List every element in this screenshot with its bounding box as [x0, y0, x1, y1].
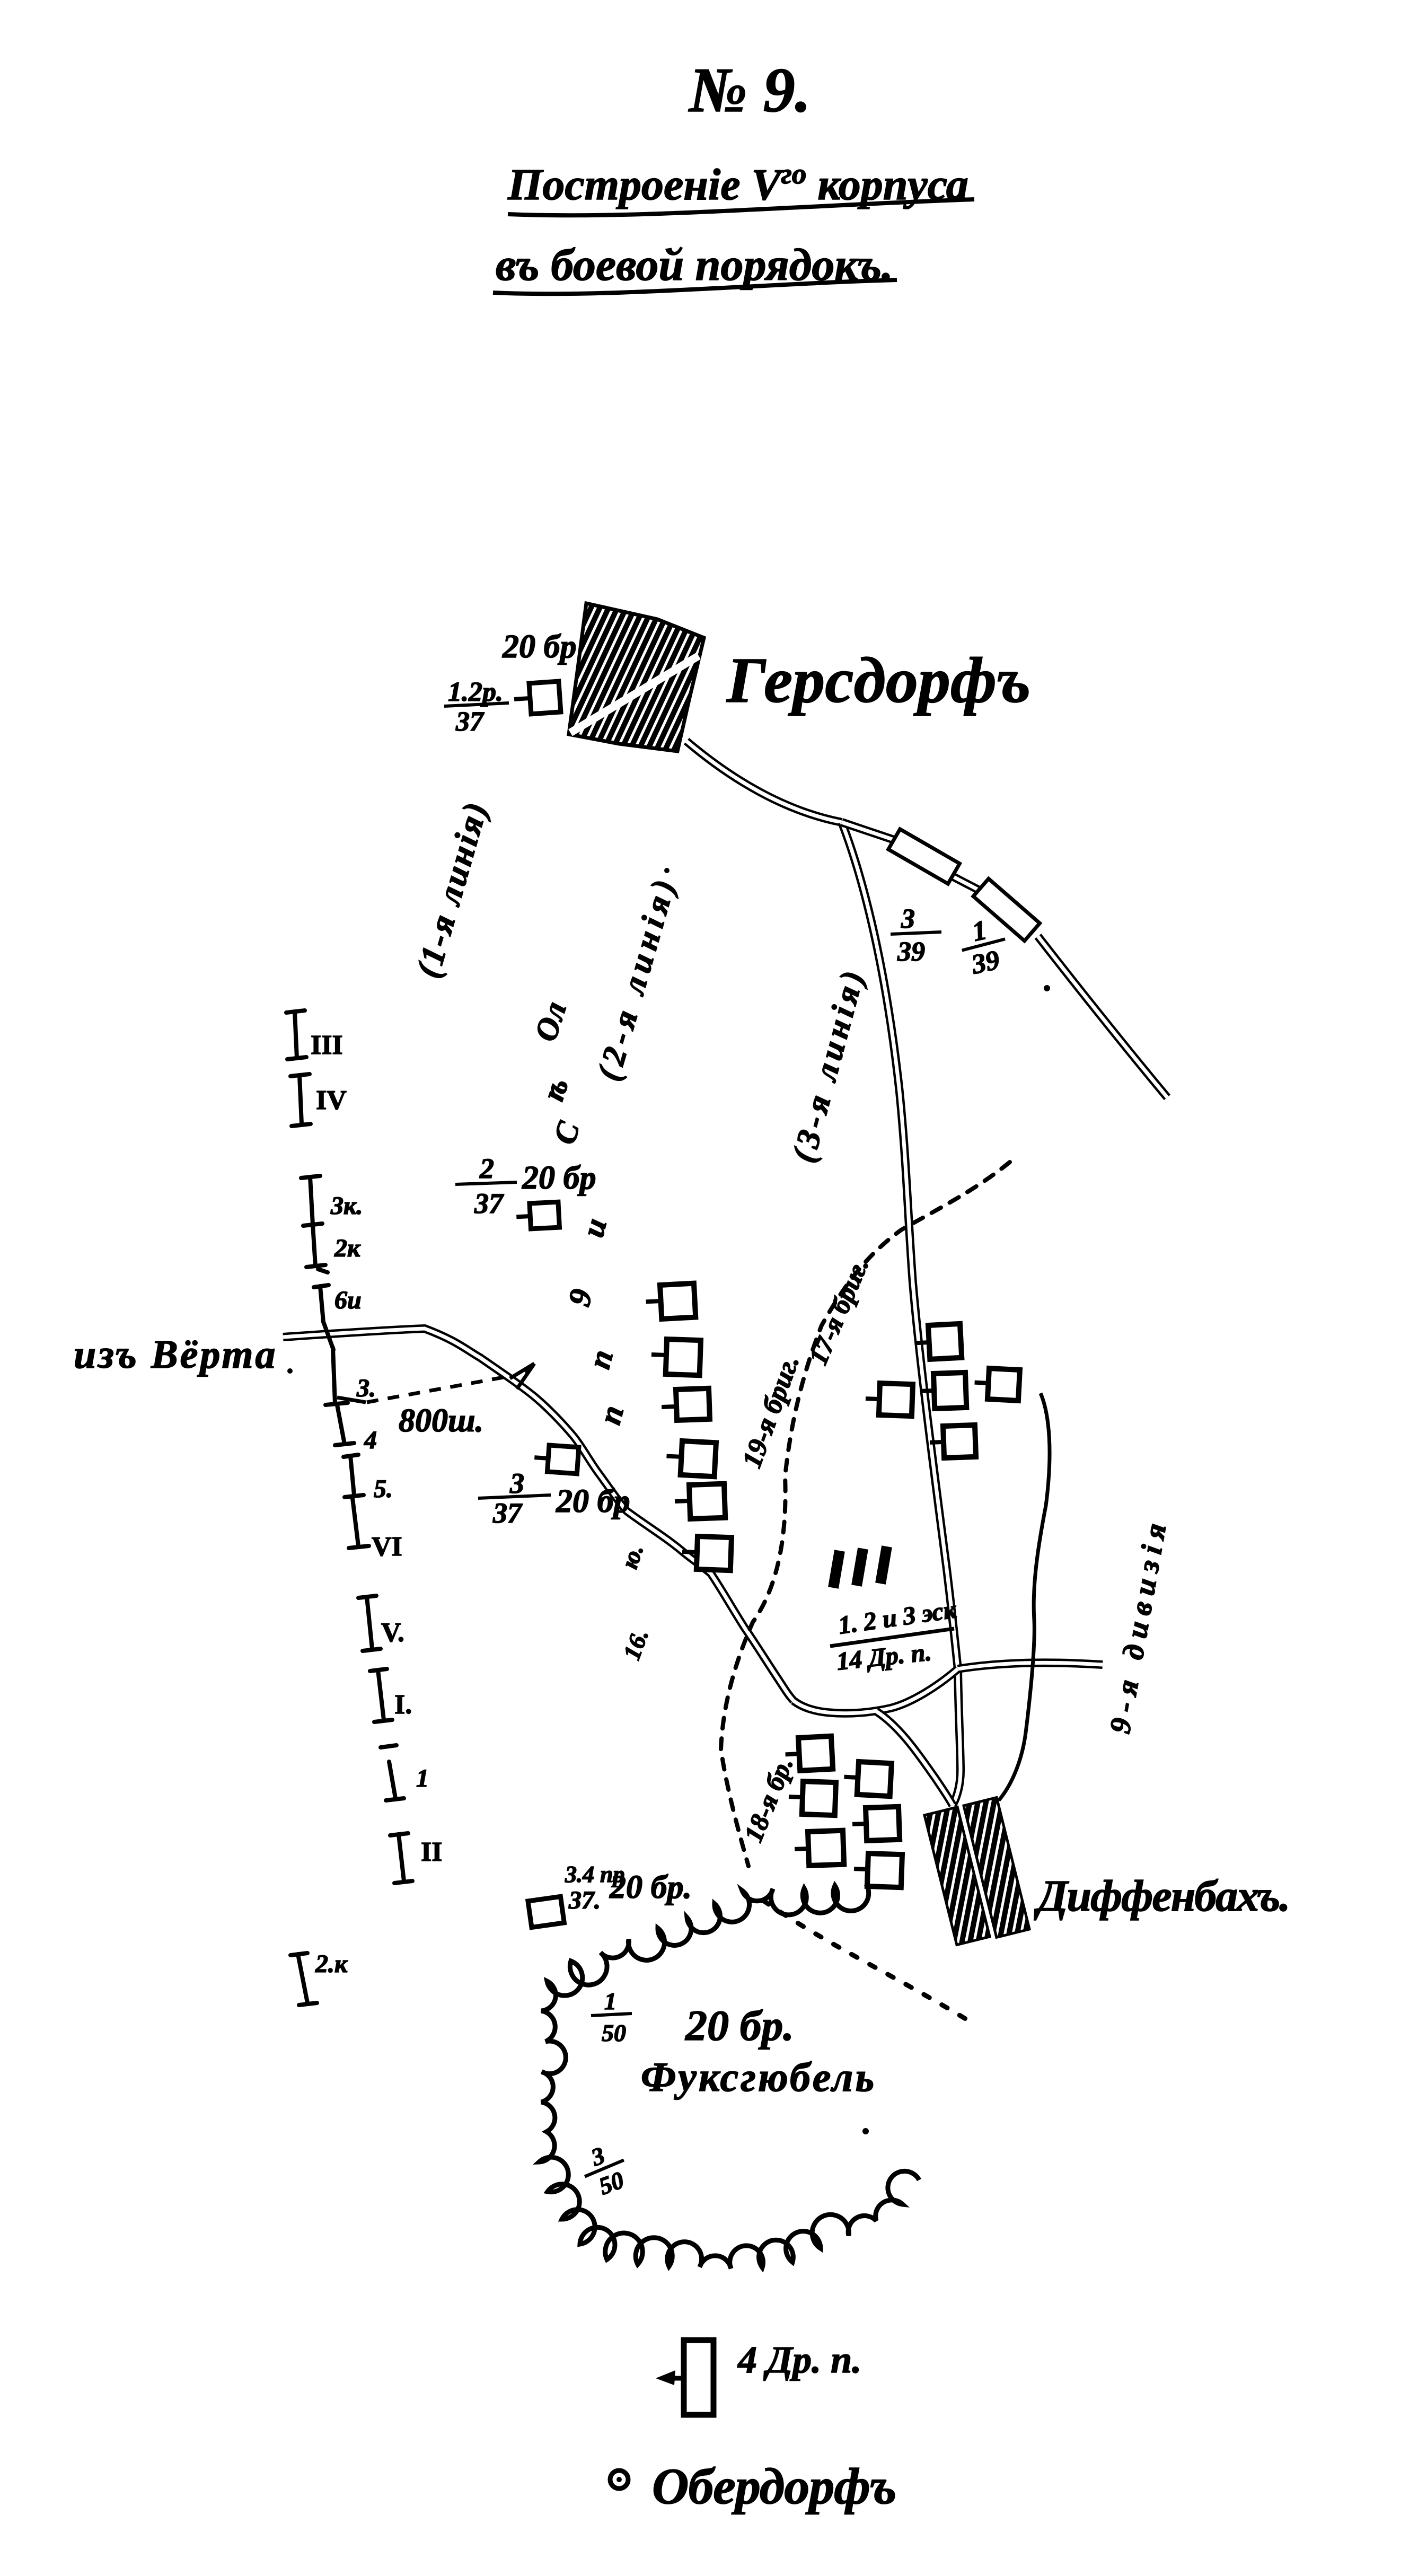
svg-text:Фуксгюбель: Фуксгюбель	[641, 2054, 876, 2100]
svg-text:VI: VI	[372, 1532, 402, 1562]
svg-text:3.: 3.	[356, 1374, 376, 1402]
svg-text:1: 1	[604, 1988, 616, 2015]
svg-text:II: II	[421, 1837, 442, 1867]
svg-text:37: 37	[474, 1188, 504, 1219]
svg-text:3: 3	[509, 1467, 524, 1499]
svg-text:1: 1	[416, 1764, 429, 1792]
svg-text:изъ Вёрта: изъ Вёрта	[74, 1332, 278, 1377]
svg-text:20 бр: 20 бр	[522, 1160, 596, 1196]
svg-text:6и: 6и	[334, 1286, 362, 1314]
svg-text:2к: 2к	[334, 1234, 361, 1262]
svg-text:37.: 37.	[568, 1886, 601, 1914]
svg-text:2.к: 2.к	[315, 1950, 348, 1978]
svg-text:Герсдорфъ: Герсдорфъ	[726, 645, 1030, 716]
svg-text:4: 4	[364, 1426, 377, 1454]
svg-text:2: 2	[479, 1153, 494, 1184]
svg-text:3к.: 3к.	[330, 1192, 363, 1220]
svg-text:50: 50	[602, 2019, 626, 2046]
svg-text:37: 37	[455, 707, 485, 737]
svg-text:Обердорфъ: Обердорфъ	[652, 2458, 896, 2515]
svg-text:4 Др. п.: 4 Др. п.	[737, 2338, 861, 2381]
svg-text:III: III	[311, 1030, 343, 1060]
svg-text:37: 37	[492, 1497, 523, 1529]
svg-text:20 бр.: 20 бр.	[685, 2001, 794, 2050]
svg-text:800ш.: 800ш.	[399, 1403, 483, 1439]
svg-text:V.: V.	[381, 1617, 404, 1648]
svg-text:I.: I.	[394, 1690, 412, 1720]
svg-text:Диффенбахъ.: Диффенбахъ.	[1034, 1871, 1289, 1921]
svg-text:IV: IV	[316, 1085, 347, 1115]
svg-text:20 бр: 20 бр	[502, 629, 576, 665]
svg-text:5.: 5.	[374, 1475, 393, 1503]
svg-text:20 бр: 20 бр	[556, 1483, 630, 1519]
svg-text:3: 3	[901, 904, 915, 934]
svg-text:20 бр.: 20 бр.	[609, 1869, 692, 1905]
svg-text:39: 39	[897, 937, 925, 967]
svg-text:№ 9.: № 9.	[688, 55, 811, 125]
